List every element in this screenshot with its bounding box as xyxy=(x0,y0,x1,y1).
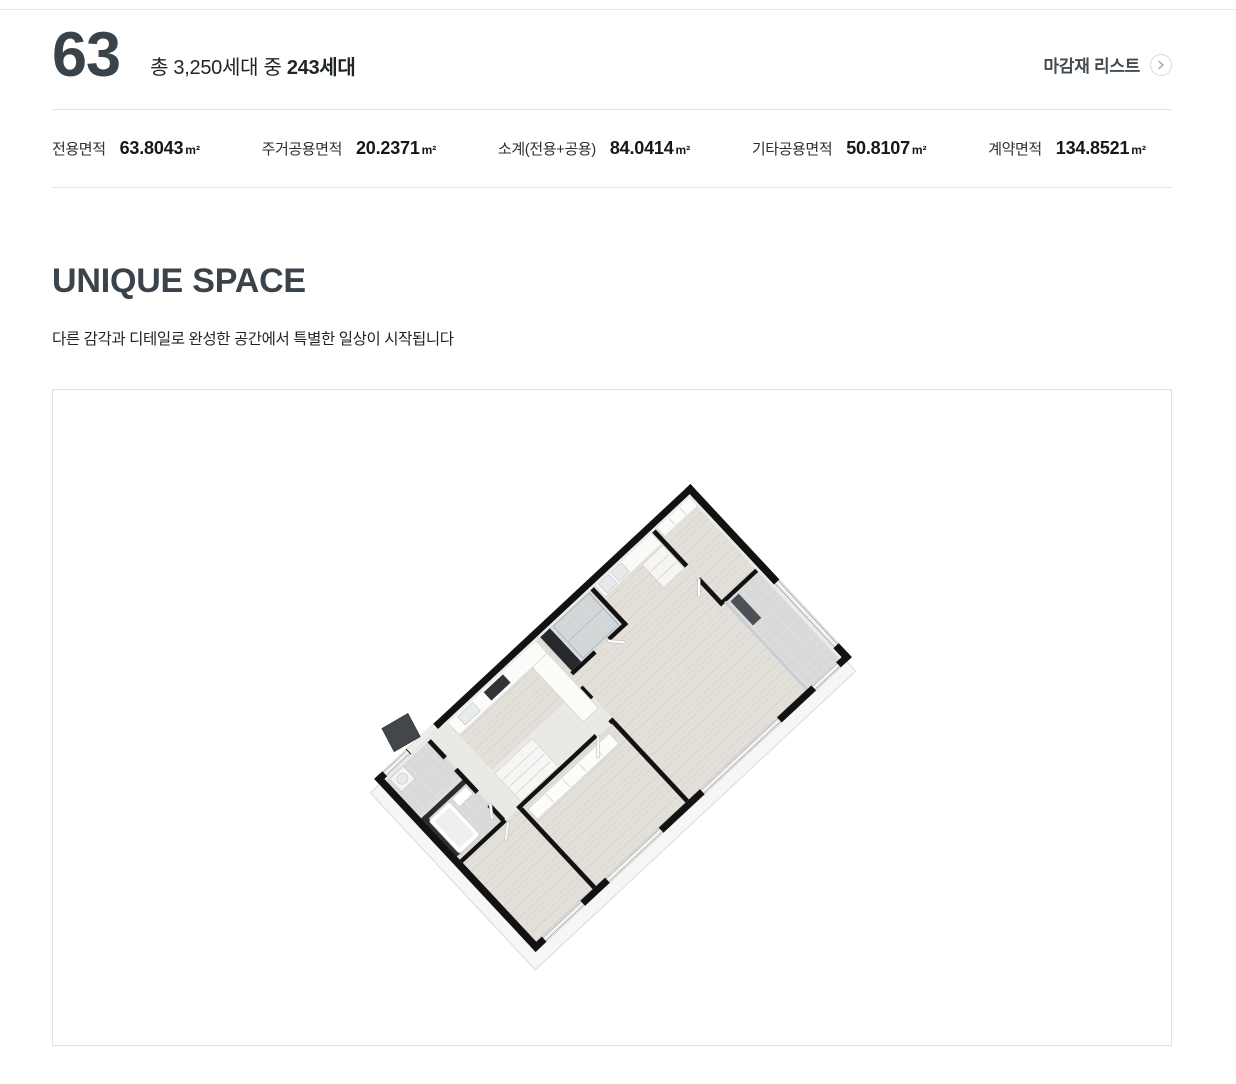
stat-subtotal-area: 소계(전용+공용) 84.0414 m² xyxy=(498,138,690,159)
stat-value: 134.8521 xyxy=(1056,138,1129,159)
supply-strong: 243세대 xyxy=(287,57,356,79)
stat-contract-area: 계약면적 134.8521 m² xyxy=(988,138,1146,159)
stat-unit: m² xyxy=(676,143,691,157)
stat-unit: m² xyxy=(912,143,927,157)
unique-space-title: UNIQUE SPACE xyxy=(52,262,1172,301)
stat-value: 63.8043 xyxy=(120,138,184,159)
stat-other-common-area: 기타공용면적 50.8107 m² xyxy=(752,138,927,159)
finish-materials-list-link[interactable]: 마감재 리스트 xyxy=(1044,52,1172,77)
stat-value: 20.2371 xyxy=(356,138,420,159)
stat-label: 기타공용면적 xyxy=(752,138,832,159)
stat-unit: m² xyxy=(1131,143,1146,157)
stat-value: 50.8107 xyxy=(846,138,910,159)
stat-unit: m² xyxy=(422,143,437,157)
supply-prefix: 총 3,250세대 중 xyxy=(150,57,287,79)
supply-count-text: 총 3,250세대 중 243세대 xyxy=(150,51,355,80)
stat-residential-common-area: 주거공용면적 20.2371 m² xyxy=(262,138,437,159)
unit-type-number: 63 xyxy=(52,24,120,87)
stat-value: 84.0414 xyxy=(610,138,674,159)
stat-label: 계약면적 xyxy=(988,138,1042,159)
floorplan-plan xyxy=(353,461,852,952)
stat-label: 주거공용면적 xyxy=(262,138,342,159)
unit-header: 63 총 3,250세대 중 243세대 마감재 리스트 xyxy=(52,10,1172,110)
unique-space-subtitle: 다른 감각과 디테일로 완성한 공간에서 특별한 일상이 시작됩니다 xyxy=(52,327,1172,349)
floorplan-3d-render xyxy=(53,390,1171,1045)
stat-label: 소계(전용+공용) xyxy=(498,138,596,159)
chevron-right-circle-icon xyxy=(1150,54,1172,76)
stat-label: 전용면적 xyxy=(52,138,106,159)
stat-exclusive-area: 전용면적 63.8043 m² xyxy=(52,138,200,159)
floorplan-panel xyxy=(52,389,1172,1046)
stat-unit: m² xyxy=(185,143,200,157)
area-stats-row: 전용면적 63.8043 m² 주거공용면적 20.2371 m² 소계(전용+… xyxy=(52,110,1172,188)
unit-detail-section: 63 총 3,250세대 중 243세대 마감재 리스트 전용면적 63.804… xyxy=(52,10,1172,1046)
finish-link-label: 마감재 리스트 xyxy=(1044,52,1140,77)
